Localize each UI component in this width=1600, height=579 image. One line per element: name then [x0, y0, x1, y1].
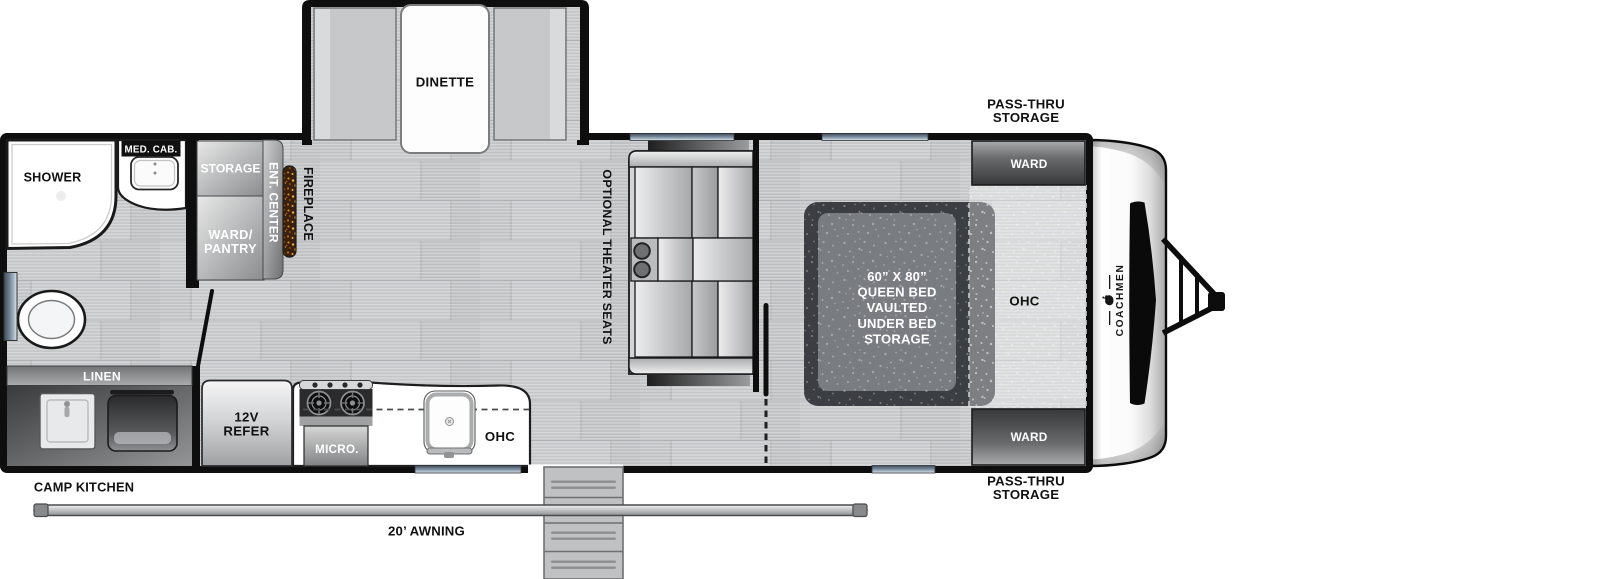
svg-text:12V: 12V — [234, 410, 258, 425]
svg-text:STORAGE: STORAGE — [200, 162, 260, 176]
svg-text:20’ AWNING: 20’ AWNING — [388, 524, 465, 539]
svg-text:OHC: OHC — [485, 429, 515, 444]
svg-text:WARD: WARD — [1011, 157, 1048, 171]
svg-text:WARD/: WARD/ — [208, 227, 252, 242]
svg-text:PANTRY: PANTRY — [204, 241, 257, 256]
svg-text:SHOWER: SHOWER — [24, 171, 82, 185]
svg-text:STORAGE: STORAGE — [993, 110, 1059, 125]
svg-text:OHC: OHC — [1009, 294, 1039, 309]
svg-text:MED. CAB.: MED. CAB. — [125, 145, 178, 156]
svg-text:UNDER BED: UNDER BED — [857, 316, 936, 331]
svg-text:WARD: WARD — [1011, 430, 1048, 444]
svg-text:ENT. CENTER: ENT. CENTER — [267, 162, 281, 243]
svg-text:REFER: REFER — [223, 424, 269, 439]
svg-text:OPTIONAL THEATER SEATS: OPTIONAL THEATER SEATS — [600, 169, 614, 344]
svg-text:STORAGE: STORAGE — [864, 331, 930, 346]
svg-text:QUEEN BED: QUEEN BED — [857, 285, 936, 300]
svg-text:LINEN: LINEN — [83, 370, 121, 384]
svg-text:STORAGE: STORAGE — [993, 487, 1059, 502]
svg-text:FIREPLACE: FIREPLACE — [301, 167, 315, 241]
svg-text:MICRO.: MICRO. — [315, 443, 359, 456]
svg-text:60” X 80”: 60” X 80” — [867, 269, 927, 284]
svg-text:VAULTED: VAULTED — [867, 300, 928, 315]
svg-text:CAMP KITCHEN: CAMP KITCHEN — [34, 480, 134, 495]
svg-text:COACHMEN: COACHMEN — [1115, 264, 1126, 337]
svg-text:DINETTE: DINETTE — [416, 75, 475, 90]
